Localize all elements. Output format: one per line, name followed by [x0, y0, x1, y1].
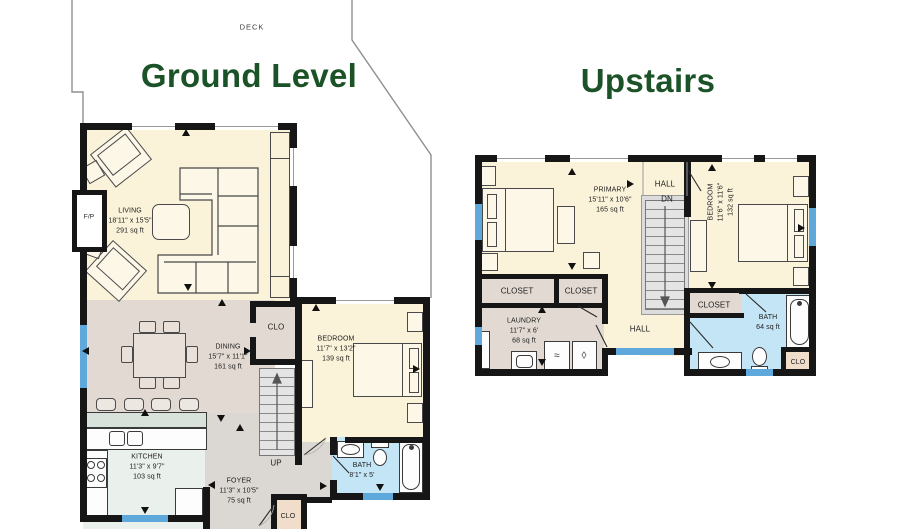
kitchen-cabinet — [175, 488, 203, 517]
window — [290, 246, 297, 278]
wall — [330, 437, 337, 455]
wall — [602, 274, 608, 324]
wall — [295, 359, 302, 465]
wall — [475, 369, 608, 376]
kitchen-peninsula-counter — [83, 412, 207, 428]
bench-primary — [557, 206, 575, 244]
blanket-fold — [505, 189, 506, 251]
window — [215, 123, 278, 130]
window-blue — [475, 204, 482, 240]
washer-icon: ≈ — [554, 351, 560, 362]
blanket-fold — [402, 344, 403, 396]
wall — [271, 494, 277, 529]
laundry-label: LAUNDRY 11'7" x 6' 68 sq ft — [507, 316, 541, 345]
bathtub-faucet — [409, 445, 414, 450]
hall-lower-label: HALL — [630, 323, 650, 334]
kitchen-counter — [83, 428, 207, 450]
pillow — [487, 222, 497, 247]
laundry-sink — [511, 351, 537, 371]
window-blue — [475, 327, 482, 345]
wall — [602, 348, 608, 376]
bath-sink-upstairs — [710, 356, 730, 368]
bar-stool — [151, 398, 171, 411]
dining-room-label: DINING 15'7" x 11'1" 161 sq ft — [208, 342, 247, 371]
window-blue — [616, 348, 674, 355]
wall — [475, 274, 608, 279]
nightstand — [793, 267, 809, 286]
pillow — [794, 209, 804, 232]
wall — [423, 297, 430, 500]
foyer-floor-2 — [305, 437, 332, 497]
shelf-divider-2 — [271, 276, 289, 277]
dining-chair — [139, 321, 156, 333]
dining-chair — [186, 346, 198, 363]
window — [722, 155, 754, 162]
living-room-label: LIVING 18'11" x 15'5" 291 sq ft — [108, 206, 151, 235]
fireplace-label: F/P — [84, 212, 94, 221]
blanket-fold — [787, 205, 788, 261]
bath-upstairs-label: BATH 64 sq ft — [756, 313, 780, 333]
wall — [684, 288, 690, 376]
dining-chair — [139, 377, 156, 389]
stool-primary — [583, 252, 600, 269]
wall — [809, 155, 816, 376]
stairs-down-label: DN — [661, 193, 673, 204]
wall — [203, 487, 210, 529]
bath-sink-ground — [341, 444, 360, 455]
bedroom-ground-label: BEDROOM 11'7" x 13'2" 139 sq ft — [316, 334, 355, 363]
hall-upper-label: HALL — [655, 178, 675, 189]
stove-burner — [97, 461, 105, 469]
bath-ground-label: BATH 8'1" x 5' — [349, 461, 374, 481]
pillow — [409, 372, 419, 393]
window-blue — [122, 515, 168, 522]
kitchen-sink-right — [127, 431, 143, 446]
toilet-bowl-upstairs — [752, 347, 767, 366]
bedroom-upstairs-label: BEDROOM 11'6" x 11'6" 132 sq ft — [706, 183, 735, 222]
kitchen-sink-left — [109, 431, 125, 446]
wall — [781, 347, 786, 376]
closet2-label: CLOSET — [565, 285, 598, 296]
upstairs-title: Upstairs — [581, 62, 715, 100]
stove-burner — [97, 474, 105, 482]
wall — [739, 288, 816, 294]
pillow — [409, 348, 419, 369]
window — [336, 297, 394, 304]
window — [290, 148, 297, 186]
bed-ground — [353, 343, 422, 397]
window-blue — [809, 208, 816, 246]
wall — [781, 347, 816, 352]
window — [132, 123, 175, 130]
toilet-bowl-ground — [373, 449, 387, 466]
shelf-divider-1 — [271, 158, 289, 159]
stairs-up-label: UP — [270, 457, 281, 468]
bathtub-faucet — [797, 301, 802, 306]
pillow — [794, 235, 804, 258]
dining-table — [133, 333, 186, 378]
nightstand — [480, 253, 498, 271]
nightstand — [793, 176, 809, 197]
wall — [345, 437, 430, 443]
window — [497, 155, 545, 162]
wall — [307, 497, 332, 503]
wall — [250, 301, 302, 307]
dining-chair — [163, 321, 180, 333]
kitchen-label: KITCHEN 11'3" x 9'7" 103 sq ft — [129, 452, 164, 481]
stove-burner — [87, 461, 95, 469]
bar-stool — [179, 398, 199, 411]
foyer-label: FOYER 11'3" x 10'5" 75 sq ft — [219, 476, 258, 505]
closet-upper-label: CLO — [268, 321, 285, 332]
closet-entry-label: CLO — [281, 512, 296, 522]
bar-stool — [96, 398, 116, 411]
ground-level-title: Ground Level — [141, 57, 357, 95]
bathtub-inner — [402, 444, 420, 490]
floorplan-canvas: Ground Level Upstairs DECK — [0, 0, 900, 529]
stairs-ground — [259, 368, 295, 456]
wall — [684, 155, 691, 217]
wall — [684, 288, 744, 293]
dryer-icon: ◊ — [582, 351, 587, 362]
laundry-sink-basin — [516, 355, 533, 368]
window-blue — [363, 493, 393, 500]
pillow — [487, 194, 497, 219]
stove-burner — [87, 474, 95, 482]
wall — [250, 337, 256, 365]
wall — [684, 313, 744, 318]
closet-upper-floor — [252, 303, 300, 365]
deck-label: DECK — [240, 23, 265, 32]
dresser-upstairs — [690, 220, 707, 272]
stairs-upstairs — [645, 200, 685, 310]
bathtub-ground — [399, 440, 423, 493]
wall — [250, 301, 256, 323]
coffee-table — [152, 204, 190, 240]
bar-stool — [124, 398, 144, 411]
closet1-label: CLOSET — [501, 285, 534, 296]
wall — [475, 303, 608, 308]
wall — [80, 123, 87, 522]
bed-primary — [482, 188, 554, 252]
builtin-shelf — [270, 132, 290, 298]
nightstand — [407, 403, 423, 423]
window — [765, 155, 797, 162]
nightstand — [407, 312, 423, 332]
closet3-label: CLOSET — [698, 299, 731, 310]
bed-upstairs — [738, 204, 808, 262]
dining-chair — [121, 346, 133, 363]
dining-chair — [163, 377, 180, 389]
window-blue — [80, 325, 87, 388]
closet-bath-label: CLO — [791, 358, 806, 368]
window-blue — [746, 369, 773, 376]
window — [570, 155, 628, 162]
wall — [554, 274, 559, 308]
primary-label: PRIMARY 15'11" x 10'6" 165 sq ft — [588, 185, 631, 214]
